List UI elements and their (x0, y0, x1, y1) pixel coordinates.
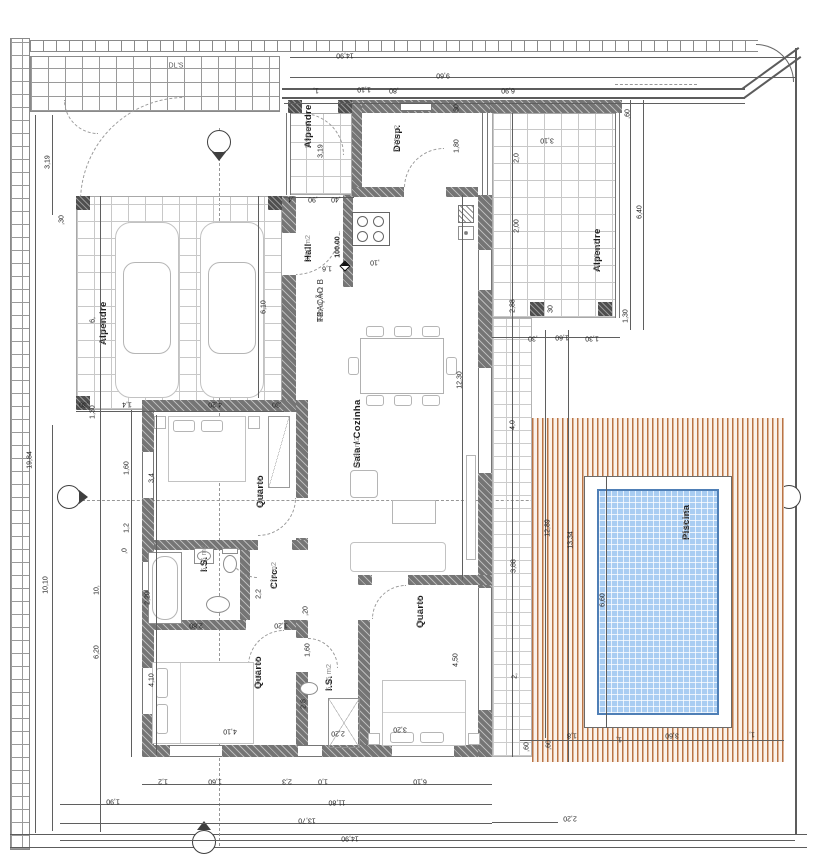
chair (422, 395, 440, 406)
dim-label: ,60 (524, 742, 531, 752)
column (288, 100, 302, 113)
dim-line (258, 196, 259, 398)
room-area: 19,15 m2 (415, 597, 424, 628)
pool-water (597, 489, 719, 715)
dim-label: 10,10 (43, 576, 50, 594)
dim-label: 6,60 (600, 593, 607, 607)
toilet (223, 555, 237, 573)
pillow (173, 420, 195, 432)
dim-label: 4,10 (149, 673, 156, 687)
burner (373, 231, 384, 242)
dim-label: 1,30 (90, 405, 97, 419)
nightstand (368, 733, 380, 745)
bed-fold-line (383, 712, 465, 713)
dim-line (52, 115, 53, 215)
dim-label: 1,6 (322, 265, 332, 272)
room-area: 6,15 m2 (324, 664, 333, 691)
level-marker-label: 100.00 (335, 236, 342, 257)
wall (358, 575, 372, 585)
wall (408, 575, 492, 585)
sliding-door (478, 588, 492, 710)
dim-label: ,90 (308, 196, 318, 203)
section-marker-left-arrow (79, 490, 88, 504)
boundary-fence-top (30, 40, 758, 52)
dim-label: 4,0 (510, 420, 517, 430)
room-area: 5,90 m2 (303, 121, 312, 148)
pillow (156, 668, 168, 698)
coffee-table (392, 500, 436, 524)
washbasin (300, 682, 318, 695)
car-cabin (123, 262, 171, 354)
dining-table (360, 338, 444, 394)
dim-label: 12,30 (457, 371, 464, 389)
dim-label: 1,30 (623, 309, 630, 323)
gate-swing-arc-small (64, 100, 98, 134)
room-area: 6,15 m2 (199, 545, 208, 572)
dim-line (284, 197, 354, 198)
burner (373, 216, 384, 227)
chair (394, 395, 412, 406)
dim-line (100, 196, 101, 832)
dim-label: ,0 (122, 548, 129, 554)
dim-label: 1,60 (124, 461, 131, 475)
toilet-tank (222, 548, 238, 554)
gate-label: DL'S (169, 63, 184, 70)
dim-label: ,60 (546, 740, 553, 750)
dim-line (520, 740, 784, 741)
dim-line (290, 57, 795, 58)
dim-label: 3,60 (665, 732, 679, 739)
dim-label: ,30 (79, 401, 89, 408)
dim-label: ,30 (59, 215, 66, 225)
dim-label: 6,40 (637, 205, 644, 219)
room-area: 6,75 m2 (392, 125, 401, 152)
dim-label: 1,2 (124, 523, 131, 533)
pillow (201, 420, 223, 432)
boundary-bottom (10, 834, 807, 835)
sofa (350, 542, 446, 572)
bathroom2-door-arc (308, 638, 338, 668)
dim-line (630, 100, 631, 330)
wall (142, 412, 154, 452)
dim-line (52, 425, 53, 831)
wall (490, 100, 622, 113)
dim-label: ,30 (528, 335, 538, 342)
window (298, 745, 322, 757)
dim-line (60, 840, 795, 841)
wall (282, 275, 296, 410)
wall (222, 745, 298, 757)
dim-label: 19,84 (27, 451, 34, 469)
dim-label: 6,10 (413, 778, 427, 785)
dim-label: 1,4 (122, 401, 132, 408)
car-cabin (208, 262, 256, 354)
window (170, 745, 222, 757)
sliding-door (478, 368, 492, 473)
column (598, 302, 612, 316)
column (76, 196, 90, 210)
room-area: 23,80 m2 (681, 509, 690, 540)
boundary-right (795, 48, 797, 834)
room-area: 40,95 m2 (592, 241, 601, 272)
wall (478, 290, 492, 368)
dim-label: 1,60 (305, 643, 312, 657)
dim-label: 1, (616, 736, 622, 743)
chair (348, 357, 359, 375)
bidet (206, 596, 230, 613)
boundary-wall-left (10, 38, 30, 850)
boundary-bottom-outer (10, 847, 807, 848)
dim-line (156, 415, 157, 755)
chair (366, 395, 384, 406)
dim-label: 1,60 (555, 334, 569, 341)
dim-label: 3,19 (318, 144, 325, 158)
dim-label: 2,0 (514, 153, 521, 163)
dim-label: ,20 (303, 606, 310, 616)
dim-line (284, 103, 745, 104)
wardrobe (268, 416, 290, 488)
burner (357, 231, 368, 242)
section-marker-left (57, 485, 81, 509)
dim-label: 3,4 (149, 473, 156, 483)
column (268, 196, 282, 210)
dim-line (60, 804, 492, 805)
room-area: 2,70 m2 (269, 562, 278, 589)
floor-plan-canvas: T3 FRAÇÃO B 244,40 m2 DL'S 100.00 Alpend… (0, 0, 816, 856)
dim-label: 4,20 (208, 401, 222, 408)
burner (357, 216, 368, 227)
dim-label: 6,20 (94, 645, 101, 659)
dim-label: 12,89 (545, 519, 552, 537)
dim-label: 4,10 (223, 728, 237, 735)
wall (352, 100, 362, 188)
dim-label: 2,2 (256, 589, 263, 599)
fraction-area: 244,40 m2 (316, 287, 325, 322)
bedroom3-door-arc (372, 585, 406, 619)
pillow (420, 732, 444, 743)
dim-label: 3,10 (540, 137, 554, 144)
dim-label: 1,30 (585, 335, 599, 342)
dim-label: 1,10 (357, 86, 371, 93)
dim-label: 14,90 (336, 52, 354, 59)
dim-label: 9,60 (436, 72, 450, 79)
armchair (350, 470, 378, 498)
dim-label: 2, (512, 673, 519, 679)
dim-line (131, 410, 132, 757)
dim-label: 2,00 (514, 219, 521, 233)
wall (478, 195, 492, 250)
tv-cabinet (466, 455, 476, 560)
room-area: 16,05 m2 (253, 658, 262, 689)
dim-label: 4,50 (453, 653, 460, 667)
porch-open-edge (615, 113, 620, 318)
porch-glazing (482, 113, 488, 195)
dim-label: 6, (90, 317, 97, 323)
chair (446, 357, 457, 375)
dim-label: ,60 (625, 109, 632, 119)
dim-label: 30 (454, 104, 461, 112)
dim-label: 10, (94, 585, 101, 595)
dim-label: 2,88 (510, 299, 517, 313)
dim-label: ,4 (288, 196, 294, 203)
pillow (156, 704, 168, 734)
room-area: 38,00 m2 (98, 314, 107, 345)
dim-label: 30 (548, 305, 555, 313)
dim-label: 1,2 (158, 778, 168, 785)
pillow (390, 732, 414, 743)
column (530, 302, 544, 316)
dim-label: 3,19 (45, 155, 52, 169)
dim-line (290, 77, 795, 78)
dim-label: 2,8 (301, 699, 308, 709)
dim-label: 14,90 (341, 835, 359, 842)
room-area: 3,60 m2 (303, 235, 312, 262)
wall (296, 400, 308, 498)
dim-label: ,10 (370, 259, 380, 266)
dim-label: 1,80 (454, 139, 461, 153)
wall (478, 710, 492, 757)
dim-label: 11,80 (329, 799, 346, 806)
pantry-door-arc (404, 148, 444, 188)
section-marker-top (207, 130, 231, 154)
nightstand (468, 733, 480, 745)
dim-label: ,30 (272, 401, 282, 408)
dim-label: 1,8 (567, 732, 577, 739)
dim-line (76, 411, 284, 412)
dim-label: 2,20 (331, 730, 345, 737)
wall (296, 620, 308, 638)
dim-label: ,40 (331, 196, 341, 203)
section-marker-top-arrow (212, 152, 226, 161)
wall (352, 187, 404, 197)
dim-label: 13,70 (298, 817, 316, 824)
dim-label: 6,90 (501, 87, 515, 94)
chair (394, 326, 412, 337)
dim-label: 1,20 (274, 622, 288, 629)
shower (328, 698, 360, 748)
column (338, 100, 352, 113)
wall (292, 540, 308, 550)
porch-open-edge (286, 113, 291, 195)
dim-label: 1, (749, 731, 755, 738)
dim-label: 13,34 (568, 531, 575, 549)
nightstand (248, 416, 260, 429)
dim-label: 3,20 (393, 726, 407, 733)
section-marker-bottom (192, 830, 216, 854)
dim-label: 3,88 (511, 559, 518, 573)
dim-line (492, 822, 558, 823)
gate-dashed-line (615, 84, 697, 85)
dim-label: ,80 (389, 87, 399, 94)
chair (366, 326, 384, 337)
fridge (458, 205, 474, 223)
dim-label: 1,0 (318, 778, 328, 785)
dim-label: 1, (313, 87, 319, 94)
dim-line (60, 823, 492, 824)
window (392, 745, 454, 757)
right-porch-tiles (492, 113, 618, 318)
chair (422, 326, 440, 337)
dim-label: 2,20 (145, 591, 152, 605)
dim-label: 2,3 (282, 778, 292, 785)
dim-label: 1,90 (106, 798, 120, 805)
dim-label: 6,10 (261, 300, 268, 314)
room-area: 62,80 m2 (352, 437, 361, 468)
site-wall-line (282, 97, 745, 99)
dim-label: 1,60 (208, 778, 222, 785)
bed-fold-line (180, 663, 181, 743)
appliance-knob (464, 231, 468, 235)
dim-label: 2,80 (189, 622, 203, 629)
dim-label: 2,20 (563, 815, 577, 822)
window (478, 250, 492, 290)
dim-line (35, 115, 36, 833)
wall (478, 473, 492, 588)
dim-line (512, 113, 513, 757)
room-area: 14,80 m2 (255, 477, 264, 508)
